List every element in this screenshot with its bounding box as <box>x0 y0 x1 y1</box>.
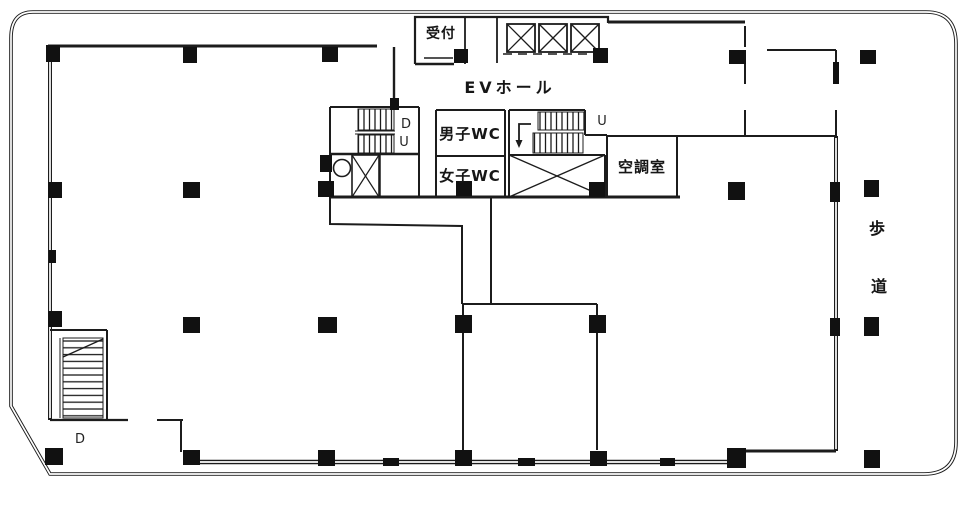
column <box>183 317 200 333</box>
column <box>589 315 606 333</box>
column <box>864 317 879 336</box>
stairB-hatch-upper <box>538 112 584 130</box>
sw-stair-down-label: D <box>75 432 85 447</box>
column-small <box>49 250 56 263</box>
column <box>860 50 876 64</box>
elevator-shaft-1 <box>507 24 535 52</box>
column <box>322 47 338 62</box>
column-small <box>390 98 399 110</box>
floor-plan-drawing: 受付 EVホール 男子WC 女子WC 空調室 歩 道 D U U D <box>0 0 980 506</box>
column <box>729 50 746 64</box>
corridor-walls <box>330 197 491 304</box>
column <box>727 448 746 468</box>
column <box>864 450 880 468</box>
elevator-shaft-3 <box>571 24 599 52</box>
column <box>318 450 335 466</box>
column <box>455 450 472 466</box>
stairA-down-label: D <box>401 117 411 132</box>
stair-arrow-head <box>516 140 523 148</box>
northeast-service-walls <box>607 26 836 136</box>
stairA-hatch-upper <box>358 109 394 130</box>
corridor-wall-west <box>330 197 462 304</box>
sidewalk-label-char1: 歩 <box>869 219 885 238</box>
stairB-hatch-lower <box>533 133 583 153</box>
column <box>183 47 197 63</box>
column <box>48 311 62 327</box>
womens-wc-label: 女子WC <box>439 167 501 185</box>
stairA-hatch-lower <box>358 135 394 153</box>
column <box>454 49 468 63</box>
column-in-wall <box>830 182 840 202</box>
column-in-wall <box>830 318 840 336</box>
shaft-circle <box>334 160 351 177</box>
column <box>320 155 332 172</box>
column <box>46 45 60 62</box>
labels: 受付 EVホール 男子WC 女子WC 空調室 歩 道 D U U D <box>75 25 887 447</box>
column-small <box>660 458 675 466</box>
column <box>48 182 62 198</box>
column <box>593 48 608 63</box>
column <box>318 181 334 197</box>
floor-plan-page: 受付 EVホール 男子WC 女子WC 空調室 歩 道 D U U D <box>0 0 980 506</box>
ac-room-label: 空調室 <box>618 158 666 176</box>
reception-label: 受付 <box>426 25 456 42</box>
column-small <box>383 458 399 466</box>
stairA-up-label: U <box>399 135 409 150</box>
column-small <box>518 458 535 466</box>
elevator-shaft-2 <box>539 24 567 52</box>
mens-wc-label: 男子WC <box>439 125 501 143</box>
sidewalk-label-char2: 道 <box>871 277 887 296</box>
column <box>455 315 472 333</box>
column <box>45 448 63 465</box>
column <box>864 180 879 197</box>
ev-hall-label: EVホール <box>464 78 555 97</box>
column <box>589 182 605 197</box>
stair-direction-arrow <box>519 124 531 141</box>
column <box>590 451 607 466</box>
bottom-middle-room <box>462 304 597 450</box>
column <box>728 182 745 200</box>
ne-wall-black-seg <box>833 62 839 84</box>
stairB-up-label: U <box>597 114 607 129</box>
exterior-walls <box>48 22 836 462</box>
column <box>183 450 200 465</box>
column <box>318 317 337 333</box>
southwest-stair <box>50 330 183 452</box>
sw-stair-hatch <box>63 338 103 418</box>
column <box>183 182 200 198</box>
